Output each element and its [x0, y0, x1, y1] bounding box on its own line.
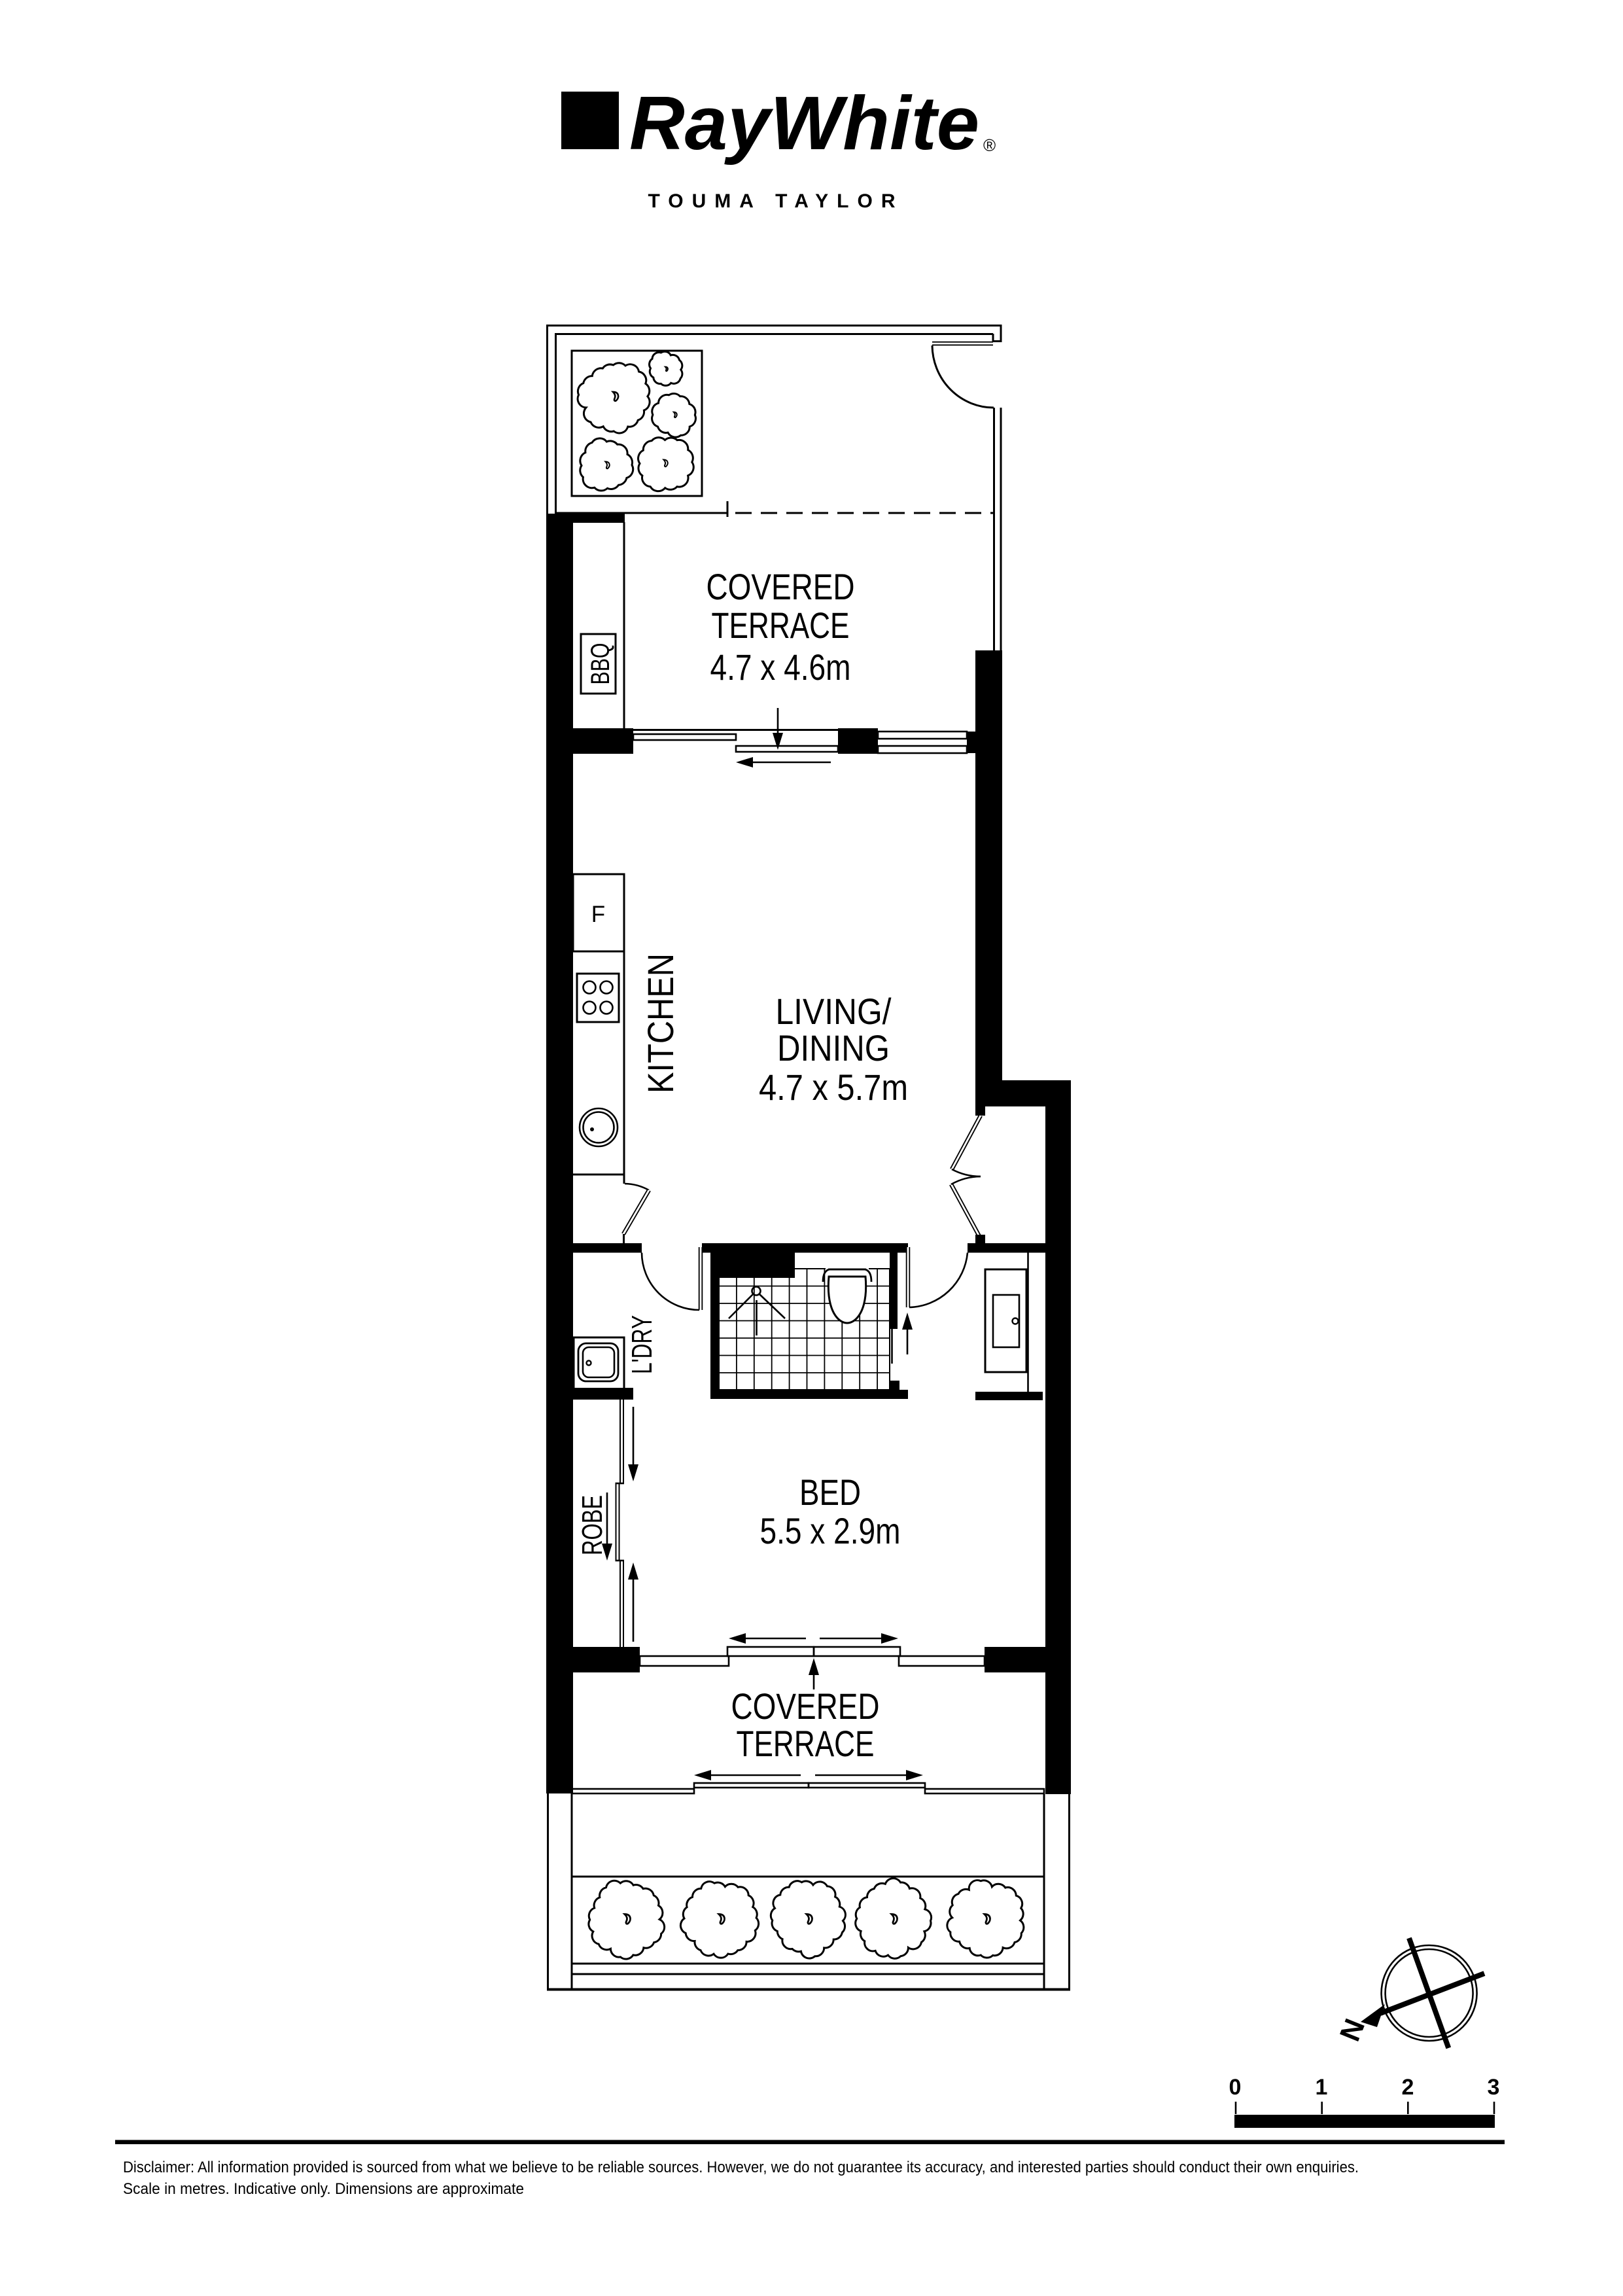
svg-text:DINING: DINING	[777, 1027, 890, 1069]
svg-text:L'DRY: L'DRY	[626, 1315, 658, 1374]
svg-text:TERRACE: TERRACE	[712, 605, 850, 646]
svg-text:COVERED: COVERED	[731, 1686, 880, 1727]
svg-text:1: 1	[1316, 2075, 1328, 2100]
svg-text:0: 0	[1229, 2075, 1242, 2100]
svg-text:COVERED: COVERED	[707, 566, 855, 607]
svg-text:F: F	[591, 902, 605, 927]
svg-text:Disclaimer: All information pr: Disclaimer: All information provided is …	[123, 2159, 1359, 2176]
svg-text:RayWhite: RayWhite	[629, 80, 979, 166]
svg-text:3: 3	[1488, 2075, 1500, 2100]
svg-text:Scale in metres. Indicative on: Scale in metres. Indicative only. Dimens…	[123, 2180, 524, 2198]
svg-text:TERRACE: TERRACE	[737, 1723, 875, 1764]
svg-text:LIVING/: LIVING/	[776, 991, 892, 1032]
svg-text:BBQ: BBQ	[586, 643, 615, 685]
svg-text:2: 2	[1402, 2075, 1414, 2100]
svg-text:KITCHEN: KITCHEN	[640, 953, 681, 1093]
svg-text:ROBE: ROBE	[576, 1495, 608, 1555]
svg-text:TOUMA TAYLOR: TOUMA TAYLOR	[648, 190, 903, 212]
svg-text:BED: BED	[799, 1472, 861, 1513]
svg-text:4.7 x 5.7m: 4.7 x 5.7m	[759, 1067, 908, 1108]
svg-text:4.7 x 4.6m: 4.7 x 4.6m	[710, 646, 851, 688]
svg-text:5.5 x 2.9m: 5.5 x 2.9m	[760, 1510, 901, 1551]
svg-text:®: ®	[983, 135, 996, 155]
